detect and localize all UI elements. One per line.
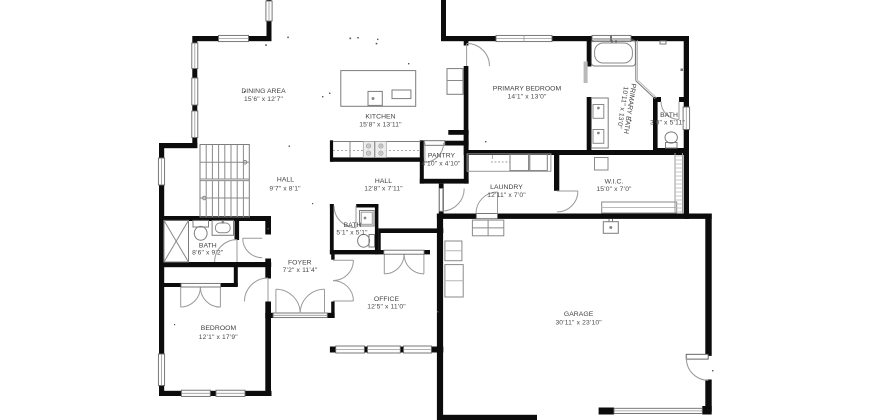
svg-text:BATH: BATH	[660, 112, 678, 119]
svg-text:W.I.C.: W.I.C.	[605, 179, 624, 186]
svg-text:BATH: BATH	[344, 222, 362, 229]
svg-text:KITCHEN: KITCHEN	[365, 114, 395, 121]
svg-text:12’11" x 7’0": 12’11" x 7’0"	[487, 192, 526, 199]
svg-text:PANTRY: PANTRY	[428, 153, 456, 160]
svg-text:30’11" x 23’10": 30’11" x 23’10"	[555, 320, 602, 327]
svg-text:7’2" x 11’4": 7’2" x 11’4"	[283, 267, 318, 274]
svg-text:12’1" x 17’9": 12’1" x 17’9"	[199, 334, 239, 341]
svg-text:FOYER: FOYER	[288, 260, 312, 267]
svg-text:HALL: HALL	[277, 177, 294, 184]
svg-text:HALL: HALL	[375, 178, 392, 185]
svg-text:DINING AREA: DINING AREA	[241, 88, 286, 95]
svg-text:8’6" x 9’2": 8’6" x 9’2"	[192, 250, 224, 257]
svg-text:15’8" x 13’11": 15’8" x 13’11"	[359, 122, 402, 129]
svg-text:14’1" x 13’0": 14’1" x 13’0"	[507, 94, 547, 101]
svg-text:5’1" x 5’1": 5’1" x 5’1"	[336, 230, 368, 237]
svg-text:15’6" x 12’7": 15’6" x 12’7"	[244, 96, 284, 103]
svg-text:PRIMARY BEDROOM: PRIMARY BEDROOM	[493, 86, 562, 93]
svg-text:3’0" x 5’11": 3’0" x 5’11"	[650, 119, 685, 126]
svg-text:LAUNDRY: LAUNDRY	[490, 184, 523, 191]
svg-text:12’8" x 7’11": 12’8" x 7’11"	[364, 186, 403, 193]
svg-text:4’10" x 4’10": 4’10" x 4’10"	[421, 161, 461, 168]
svg-text:12’5" x 11’0": 12’5" x 11’0"	[367, 304, 406, 311]
svg-text:9’7" x 8’1": 9’7" x 8’1"	[269, 186, 301, 193]
svg-text:BEDROOM: BEDROOM	[201, 325, 237, 332]
svg-text:OFFICE: OFFICE	[374, 296, 400, 303]
svg-text:GARAGE: GARAGE	[564, 311, 594, 318]
svg-text:15’0" x 7’0": 15’0" x 7’0"	[596, 186, 632, 193]
